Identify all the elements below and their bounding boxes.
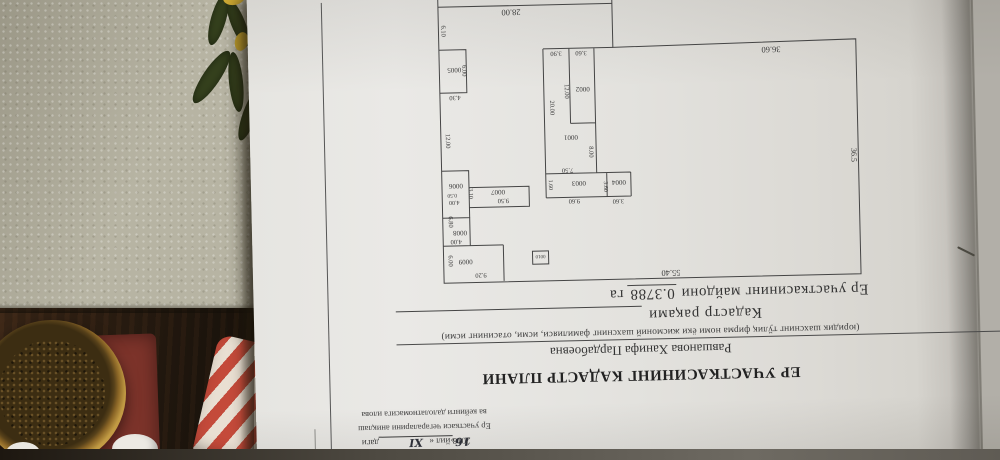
cadastre-number-blank bbox=[396, 306, 643, 328]
plan-dim-label: 9.60 bbox=[569, 197, 581, 204]
plan-dim-label: 12.00 bbox=[563, 84, 570, 99]
parcel-0009-outline bbox=[503, 245, 504, 281]
parcel-id-label: 0009 bbox=[458, 258, 473, 266]
page-frame-line bbox=[321, 3, 332, 455]
plan-dim-label: 3.60 bbox=[613, 197, 625, 204]
boundary-dim-label: 36.60 bbox=[761, 45, 780, 55]
plan-dim-label: 4.00 bbox=[449, 199, 460, 205]
plot-outer-boundary bbox=[438, 0, 861, 283]
staple-mark bbox=[957, 246, 975, 256]
area-label: Ер участкасининг майдони bbox=[681, 281, 869, 301]
cadastre-label: Кадастр рақами bbox=[648, 303, 762, 323]
plan-dim-label: 20.00 bbox=[548, 100, 555, 115]
area-line: Ер участкасининг майдони 0.3788 га bbox=[609, 280, 868, 303]
plan-dim-label: 8.00 bbox=[587, 146, 594, 158]
area-unit: га bbox=[609, 286, 623, 302]
plan-dim-label: 4.30 bbox=[449, 94, 461, 101]
parcel-block-lines bbox=[543, 47, 631, 198]
cadastral-plan-drawing: 55.4036.536.6028.0012.006.1020.003.903.6… bbox=[427, 0, 870, 287]
parcel-id-label: 0005 bbox=[447, 66, 462, 74]
plan-dim-label: 3.60 bbox=[602, 181, 608, 192]
parcel-id-label: 0008 bbox=[452, 229, 467, 237]
date-suffix: даги bbox=[362, 436, 379, 450]
plot-boundary-bottom-notch bbox=[438, 3, 612, 7]
attachment-note: 2018 йил «16» ХI даги Ер участкаси чегар… bbox=[328, 405, 521, 451]
parcel-id-label: 0007 bbox=[491, 188, 506, 196]
plan-dim-label: 3.90 bbox=[550, 50, 562, 57]
page-title: ЕР УЧАСТКАСИНИНГ КАДАСТР ПЛАНИ bbox=[449, 361, 833, 387]
boundary-dim-label: 55.40 bbox=[661, 268, 680, 278]
plan-dim-label: 3.60 bbox=[575, 49, 587, 56]
plan-dim-label: 0.50 bbox=[447, 192, 457, 198]
plan-dim-label: 4.00 bbox=[450, 238, 462, 245]
area-value: 0.3788 bbox=[628, 284, 677, 302]
plan-dim-label: 9.50 bbox=[498, 197, 510, 204]
plan-dim-label: 9.20 bbox=[475, 271, 487, 278]
handwritten-month: ХI bbox=[409, 436, 423, 449]
parcel-id-label: 0003 bbox=[571, 179, 586, 187]
parcel-id-label: 0001 bbox=[563, 133, 578, 141]
plan-dimension-labels: 55.4036.536.6028.0012.006.1020.003.903.6… bbox=[439, 0, 861, 283]
plan-dim-label: 6.80 bbox=[447, 216, 454, 228]
photo-scene: 2018 йил «16» ХI даги Ер участкаси чегар… bbox=[0, 0, 1000, 460]
date-close-quote: » bbox=[451, 434, 456, 448]
plan-dim-label: 12.00 bbox=[444, 134, 451, 149]
photo-bottom-edge bbox=[0, 449, 1000, 460]
boundary-dim-label: 36.5 bbox=[849, 148, 858, 162]
plan-dim-label: 7.50 bbox=[562, 166, 574, 173]
plan-dim-label: 6.10 bbox=[439, 25, 446, 37]
bowl-contents bbox=[0, 340, 105, 445]
page-fold bbox=[970, 0, 983, 460]
plan-dim-label: 6.00 bbox=[447, 255, 454, 267]
parcel-id-label: 0004 bbox=[611, 178, 626, 186]
plan-dim-label: 3.10 bbox=[467, 188, 473, 199]
plan-dim-label: 1.60 bbox=[547, 179, 553, 190]
parcel-id-label: 0006 bbox=[448, 182, 463, 190]
document-paper: 2018 йил «16» ХI даги Ер участкаси чегар… bbox=[247, 0, 1000, 460]
parcel-id-label: 0002 bbox=[575, 85, 590, 93]
parcel-id-label: 0010 bbox=[535, 253, 546, 258]
boundary-dim-label: 28.00 bbox=[501, 7, 520, 17]
